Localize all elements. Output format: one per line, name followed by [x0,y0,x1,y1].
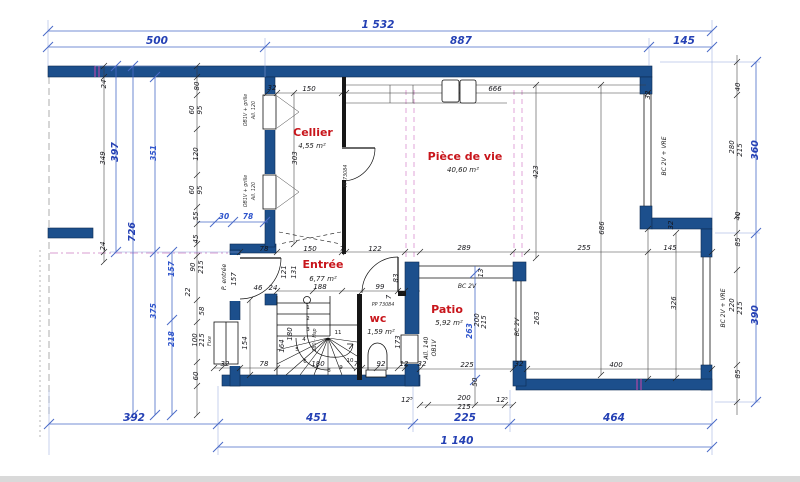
dim-text: 60 [188,185,196,194]
dim-text: 9 [339,365,343,371]
dim-text: 11 [335,330,342,336]
floor-plan-canvas: 1 5325008871453924512254641 140397726360… [0,0,800,482]
floor-plan-drawing: 1 5325008871453924512254641 140397726360… [0,0,800,482]
dim-text: All. 140 [423,336,430,360]
dim-text: BC 2V [514,317,521,336]
dim-text: 423 [532,165,540,178]
dim-text: 154 [241,336,249,349]
dim-text: 13 [477,269,485,278]
dim-text: 32 [418,360,427,368]
dim-text: 349 [99,151,107,165]
dim-text: 24 [269,284,278,292]
dim-text: 6 [303,359,307,365]
sink-bowl-left [442,80,459,102]
dim-text: P. entrée [221,264,228,291]
dim-text: 30 [219,212,229,221]
dim-text: 180 - Hsp [312,328,318,351]
dim-text: 78 [260,245,269,253]
dim-text: OB1V [431,339,438,357]
dim-text: 55 [192,211,200,220]
dim-text: 46 [254,284,263,292]
dim-text: 215 [197,260,205,274]
dim-text: 225 [460,361,474,369]
dim-text: 145 [663,244,677,252]
dim-text: 60 [188,105,196,114]
dim-text: 78 [243,212,253,221]
dim-text: 157 [230,272,238,286]
dim-text: 255 [577,244,591,252]
dim-text: 351 [149,145,158,161]
dim-text: 7 [340,245,345,253]
dim-text: BC 2V + VRE [720,288,727,327]
dim-text: Fixe [207,336,213,346]
dim-text: 85 [734,369,742,378]
dim-text: 12⁵ [496,396,508,404]
dim-text: 686 [598,221,606,235]
dim-text: 188 [313,283,327,291]
dim-text: 7 [315,366,319,372]
dim-text: All. 120 [251,101,257,120]
dim-text: 150 [303,245,317,253]
dim-text: 83 [392,274,400,283]
wall-vent-marks [95,66,641,390]
room-name-patio: Patio [431,303,463,316]
exterior-walls [48,66,712,390]
dim-text: 8 [327,368,331,374]
dim-text: 726 [127,222,138,242]
dim-text: 200 [457,394,471,402]
dim-text: 32 [268,84,277,92]
dim-text: 95 [196,185,204,194]
dim-text: 173 [394,335,402,348]
dim-text: 666 [488,85,502,93]
dim-text: OB1V + grille [243,94,249,126]
room-name-cellier: Cellier [293,126,333,139]
dim-text: 375 [149,303,158,319]
dim-text: 32 [667,220,675,229]
dim-text: 58 [198,306,206,315]
dim-text: 7 [342,85,347,93]
dim-text: 32 [221,360,230,368]
dim-text: 392 [123,412,145,424]
dim-text: 60 [192,371,200,380]
dim-text: 164 [278,339,286,352]
room-area-entree: 6,77 m² [309,275,337,283]
dim-text: 40 [734,82,742,91]
dim-text: 215 [480,315,488,329]
room-name-wc: wc [370,312,387,325]
bottom-edge-strip [0,476,800,482]
dim-text: OB1V + grille [243,175,249,207]
dim-text: 45 [192,234,200,243]
dim-text: 95 [196,105,204,114]
dim-text: 400 [609,361,623,369]
room-area-piece-de-vie: 40,60 m² [447,166,479,174]
dim-text: BC 2V + VRE [661,136,668,175]
dim-text: 225 [454,412,476,424]
dim-text: 92 [377,360,386,368]
dim-text: 1 140 [441,435,474,447]
dim-text: 50 [471,377,479,386]
dim-text: PP 73084 [372,302,395,308]
dim-text: 121 [280,265,288,278]
dim-text: 32 [644,90,652,99]
sink-bowl-right [460,80,476,103]
dim-text: 390 [750,305,761,325]
dim-text: 215 [198,333,206,347]
dim-text: 145 [673,35,695,47]
dim-text: 218 [167,331,176,347]
dim-text: 215 [736,301,744,315]
dim-text: 12 [400,360,409,368]
dim-text: 7 [385,294,393,299]
dim-text: 5 [295,347,299,353]
room-name-entree: Entrée [303,258,344,271]
dim-text: 451 [305,412,328,424]
dim-text: All. 120 [251,182,257,201]
dim-text: 280 [728,140,736,154]
dim-text: 215 [736,143,744,157]
dim-text: 326 [670,296,678,310]
dim-text: 220 [728,298,736,312]
dim-text: 150 [302,85,316,93]
dim-text: 887 [450,35,473,47]
dim-text: 12⁵ [401,396,413,404]
dim-text: 122 [368,245,382,253]
dim-text: 32 [515,360,524,368]
room-area-wc: 1,59 m² [367,328,395,336]
dim-text: 360 [750,140,761,160]
dim-text: 85 [734,237,742,246]
dim-text: 263 [533,311,541,324]
dim-text: 3 [306,327,310,333]
dim-text: 90 [189,262,197,271]
dim-text: 289 [457,244,471,252]
dim-text: 2 [306,316,310,322]
room-area-cellier: 4,55 m² [298,142,326,150]
dim-text: 215 [457,403,471,411]
dim-text: 7 [354,360,359,368]
dim-text: 24 [100,80,108,89]
dim-text: 78 [260,360,269,368]
dim-text: 1 532 [362,19,395,31]
dim-text: 303 [291,151,299,164]
dim-text: 397 [110,142,121,162]
dim-text: 24 [99,242,107,251]
dim-text: 99 [376,283,385,291]
dim-text: 464 [602,412,625,424]
dim-text: 157 [167,260,176,276]
dim-text: 80 [193,81,201,90]
open-passage-marks [279,232,341,244]
dim-text: 10 [347,358,354,364]
room-labels: Cellier 4,55 m² Pièce de vie 40,60 m² En… [293,126,502,336]
dim-text: 1 [306,305,310,311]
room-name-piece-de-vie: Pièce de vie [428,150,503,163]
room-area-patio: 5,92 m² [435,319,463,327]
dim-text: BC 2V [458,283,477,290]
dim-text: PP 73084 [343,165,349,188]
dim-text: 4 [302,337,306,343]
dim-text: 120 [192,147,200,161]
dim-text: 22 [184,287,192,296]
dim-text: 131 [290,265,298,278]
dim-text: 40 [734,211,742,220]
dim-text: 500 [146,35,168,47]
dim-text: 180 [286,327,294,341]
